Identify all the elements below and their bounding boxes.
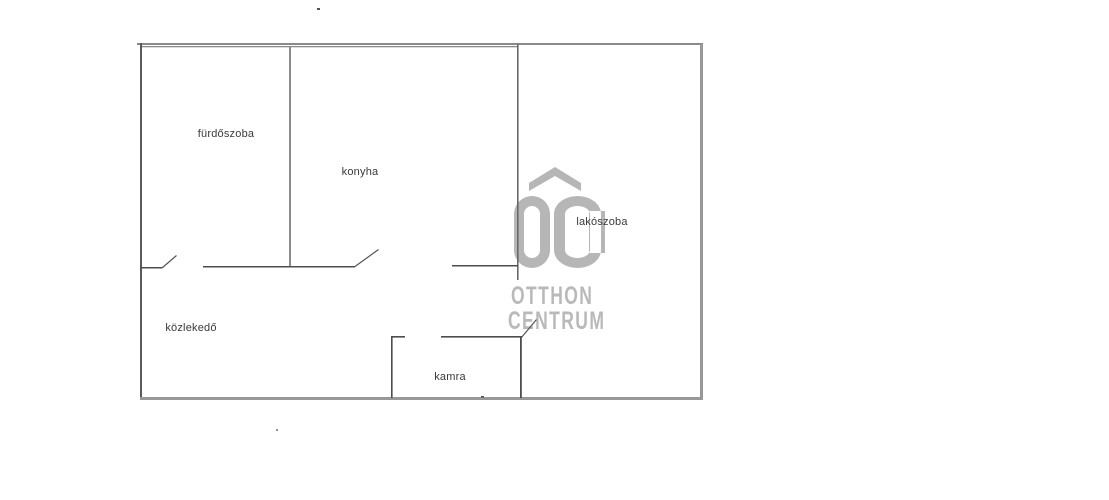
wall-outer-top: [137, 43, 703, 45]
room-label-furdoszoba: fürdőszoba: [198, 128, 254, 140]
wall-hallway-left-stub: [141, 267, 162, 269]
wall-outer-bottom: [140, 397, 703, 400]
wall-bathroom-right-divider: [289, 46, 291, 267]
speck-top: [317, 8, 320, 10]
wall-outer-left: [140, 43, 142, 399]
door-kamra-leaf: [521, 320, 537, 339]
room-label-konyha: konyha: [342, 166, 379, 178]
logo-letter-c-icon: [554, 196, 605, 268]
wall-kamra-right: [520, 337, 522, 398]
wall-hallway-right: [452, 265, 518, 267]
floorplan-drawing: OC: [0, 0, 1109, 500]
wall-bathroom-kitchen-top-inner: [142, 46, 518, 47]
floorplan-canvas: OTTHON CENTRUM OC: [0, 0, 1109, 500]
wall-kitchen-living-divider: [517, 44, 519, 280]
wall-kamra-top-right: [441, 336, 522, 338]
room-label-kamra: kamra: [434, 371, 466, 383]
door-kitchen-leaf: [355, 250, 379, 267]
speck-bottom-wall: [481, 396, 484, 398]
wall-kamra-left: [391, 337, 393, 398]
logo-roof-icon: [529, 167, 581, 191]
room-label-lakoszoba: lakószoba: [576, 216, 627, 228]
room-label-kozlekedo: közlekedő: [165, 322, 216, 334]
speck-bottom: [276, 429, 278, 431]
door-bathroom-leaf: [162, 256, 177, 269]
wall-kamra-top-left: [391, 336, 405, 338]
wall-hallway-middle: [203, 266, 355, 268]
wall-outer-right: [700, 44, 703, 399]
logo-letter-o-icon: [514, 196, 550, 268]
